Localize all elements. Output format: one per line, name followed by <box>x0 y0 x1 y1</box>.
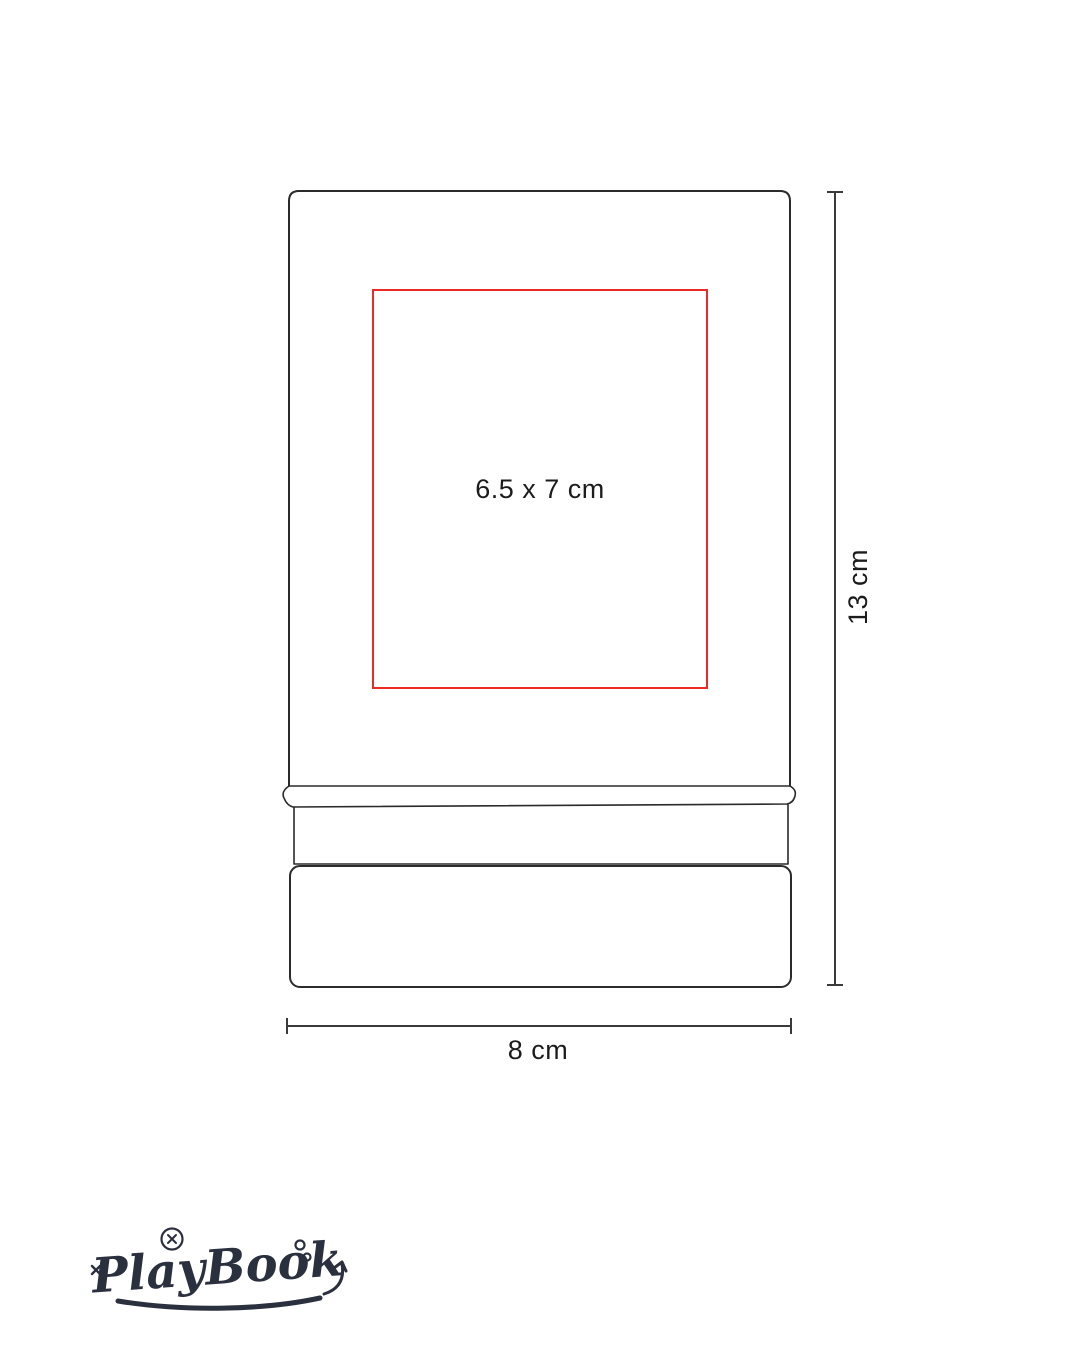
width-dimension-label: 8 cm <box>438 1033 638 1067</box>
product-lip-outline <box>283 786 795 807</box>
logo-wordmark: PlayBook <box>88 1231 344 1305</box>
height-dimension-label: 13 cm <box>841 522 875 652</box>
width-dimension-line <box>287 1018 791 1034</box>
playbook-logo: PlayBook <box>80 1218 350 1313</box>
product-spec-sheet: 6.5 x 7 cm 13 cm 8 cm PlayBook <box>0 0 1080 1350</box>
product-base-outline <box>290 866 791 987</box>
print-area-label: 6.5 x 7 cm <box>373 290 707 688</box>
product-middle-band-outline <box>294 804 788 864</box>
